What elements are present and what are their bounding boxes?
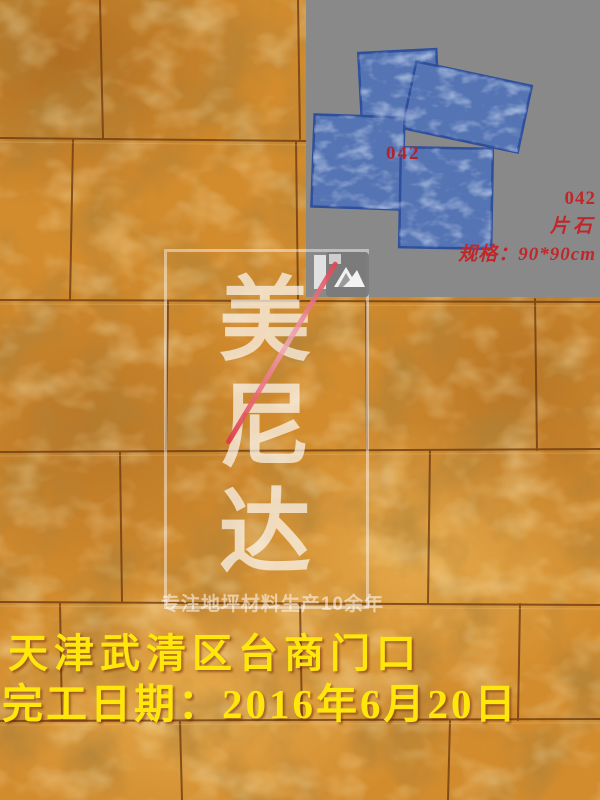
promo-photo: 042 042 片石 规格：90*90cm 美 尼 达 专注地坪材料生产10余年… [0, 0, 600, 800]
mountain-logo-icon [314, 250, 370, 300]
brand-tagline: 专注地坪材料生产10余年 [150, 589, 395, 616]
caption-date-line: 完工日期：2016年6月20日 [2, 670, 519, 730]
brand-char: 尼 [219, 374, 311, 480]
product-spec-label: 规格：90*90cm [458, 239, 596, 266]
brand-char: 达 [219, 480, 311, 586]
product-info: 042 片石 规格：90*90cm [396, 188, 596, 266]
product-code-label: 042 [565, 188, 597, 210]
product-type-label: 片石 [550, 211, 596, 238]
mold-code-label: 042 [386, 143, 421, 165]
